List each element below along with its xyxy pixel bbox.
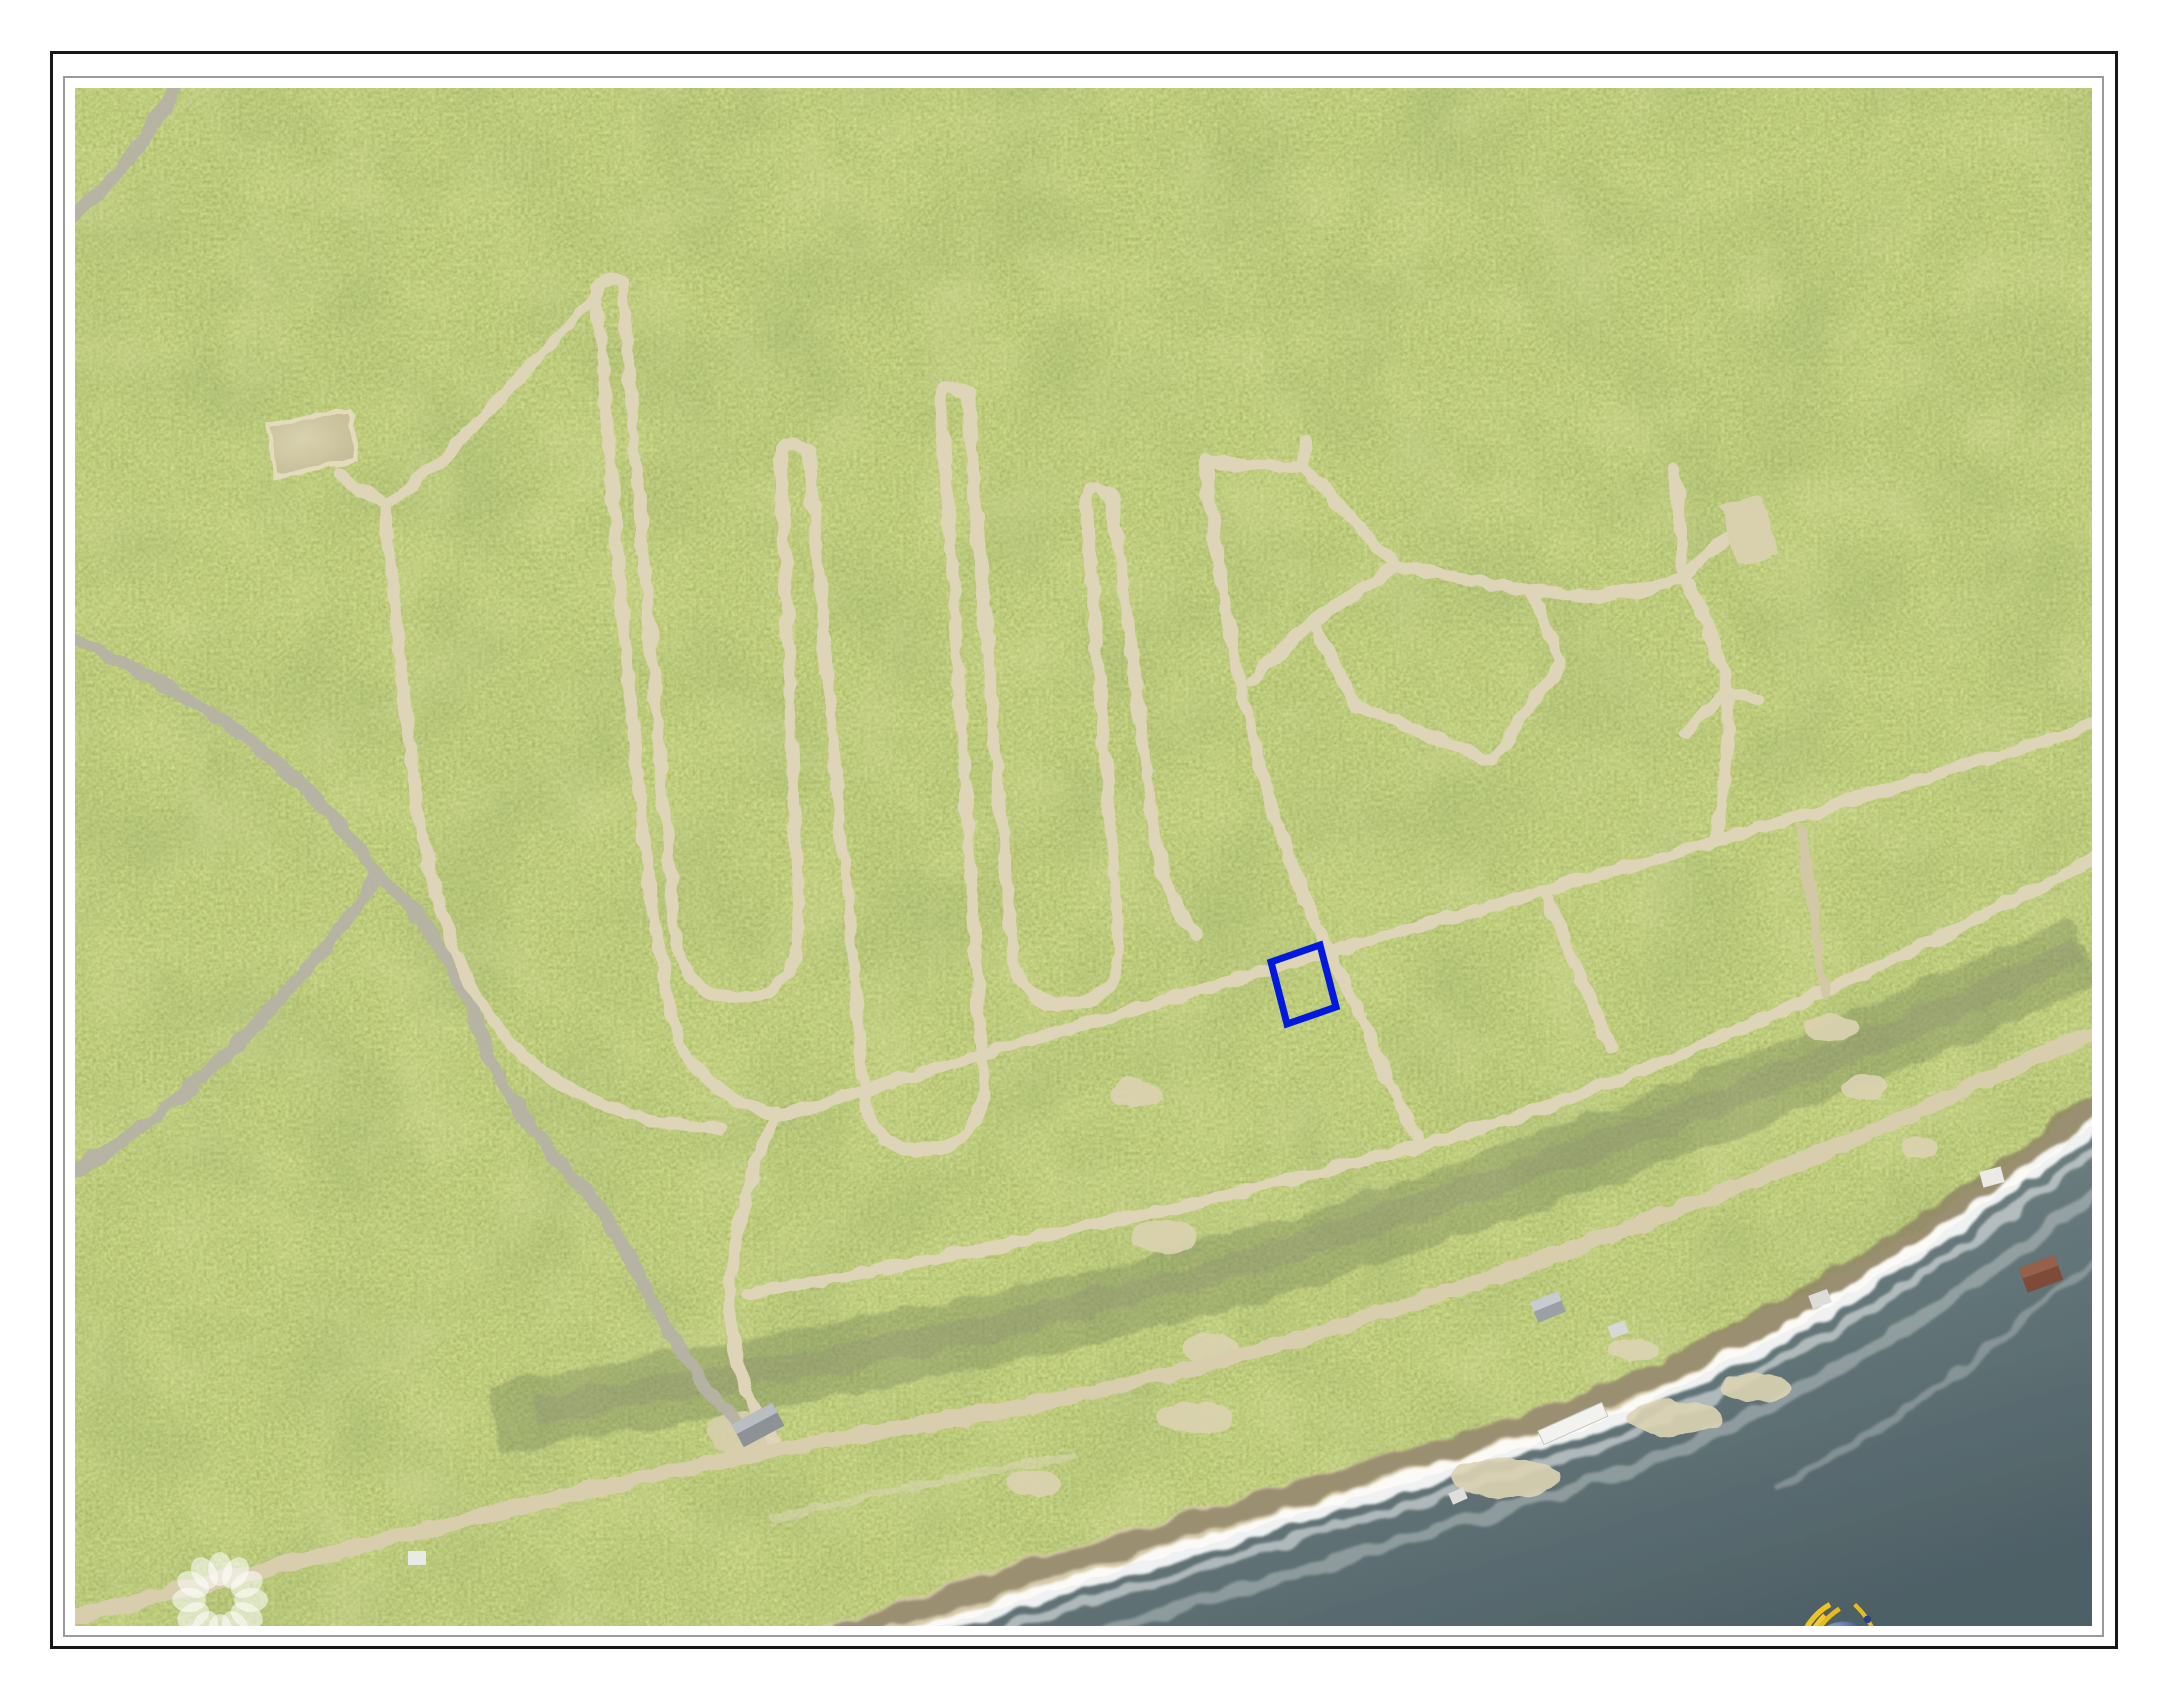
globe-icon [1787,1598,1905,1626]
cayman-land-info-logo: CAYMAN LAND INFO www.caymanlandinfo.ky [1787,1598,2092,1626]
aerial-map: cireba 8/24/23 11:41 AM [75,88,2092,1626]
shed [408,1551,426,1565]
map-export-page: cireba 8/24/23 11:41 AM [0,0,2168,1700]
aerial-photo-canvas [75,88,2092,1626]
cireba-flower-icon [158,1538,282,1626]
